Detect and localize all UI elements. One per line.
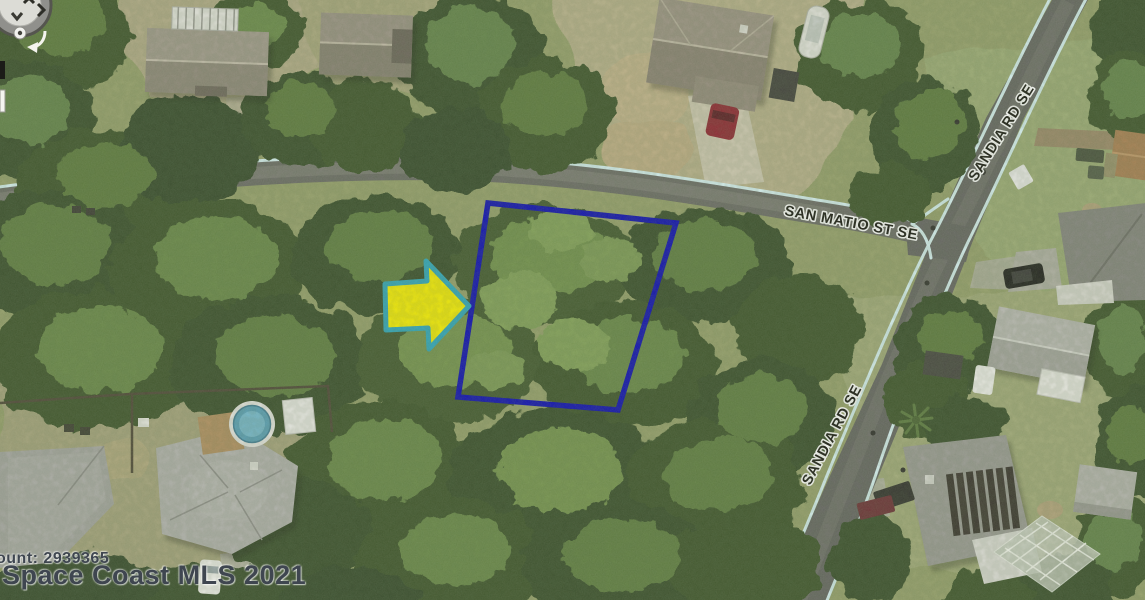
aerial-map: SAN MATIO ST SE SANDIA RD SE SANDIA RD S…: [0, 0, 1145, 600]
left-edge-button-partial[interactable]: [0, 61, 5, 79]
mls-aerial-photo: SAN MATIO ST SE SANDIA RD SE SANDIA RD S…: [0, 0, 1145, 600]
photo-grain: [0, 0, 1145, 600]
left-edge-button-partial[interactable]: [0, 90, 5, 112]
